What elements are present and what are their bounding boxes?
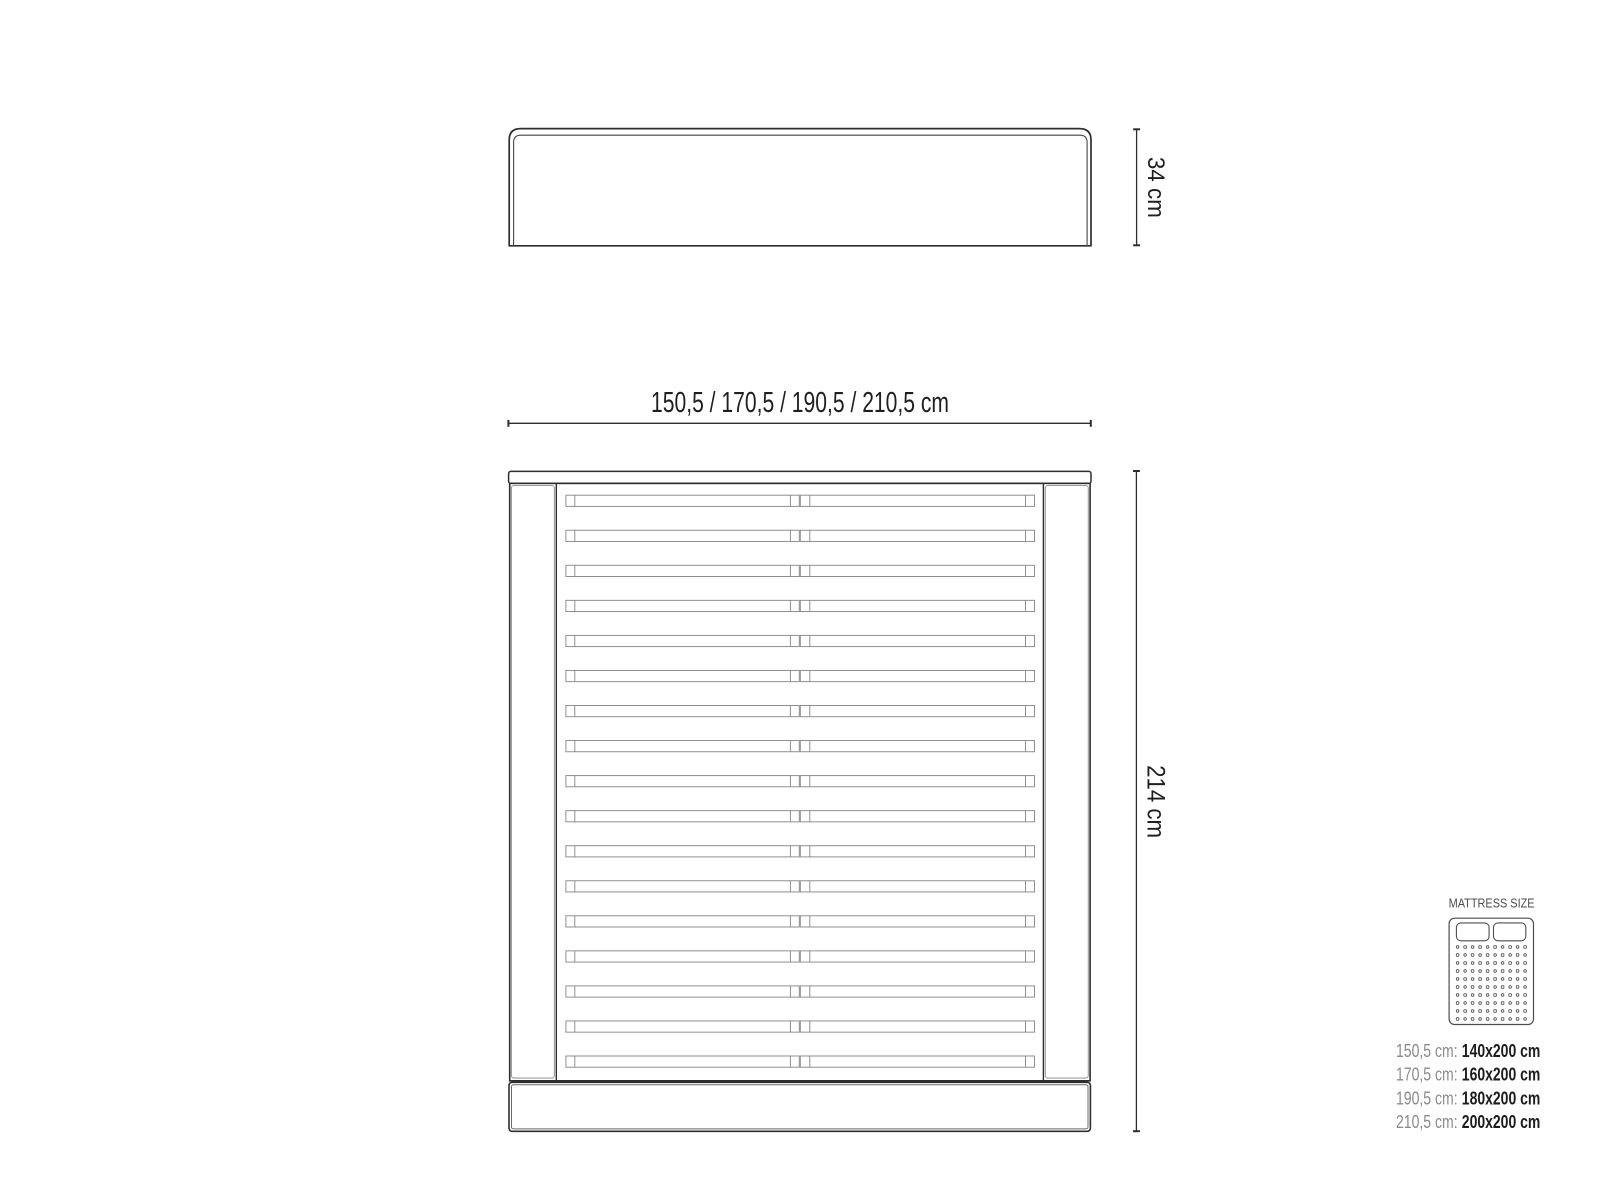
svg-text:170,5 cm:: 170,5 cm: — [1396, 1065, 1458, 1085]
svg-text:MATTRESS SIZE: MATTRESS SIZE — [1449, 896, 1535, 911]
svg-text:214 cm: 214 cm — [1142, 765, 1170, 838]
svg-text:200x200 cm: 200x200 cm — [1462, 1112, 1541, 1132]
svg-text:150,5 cm:: 150,5 cm: — [1396, 1041, 1458, 1061]
svg-text:210,5 cm:: 210,5 cm: — [1396, 1112, 1458, 1132]
svg-text:34 cm: 34 cm — [1142, 157, 1169, 218]
svg-text:140x200 cm: 140x200 cm — [1462, 1041, 1541, 1061]
svg-text:150,5 / 170,5 / 190,5 / 210,5: 150,5 / 170,5 / 190,5 / 210,5 cm — [651, 387, 949, 419]
svg-text:190,5 cm:: 190,5 cm: — [1396, 1088, 1458, 1108]
svg-text:160x200 cm: 160x200 cm — [1462, 1065, 1541, 1085]
svg-text:180x200 cm: 180x200 cm — [1462, 1088, 1541, 1108]
